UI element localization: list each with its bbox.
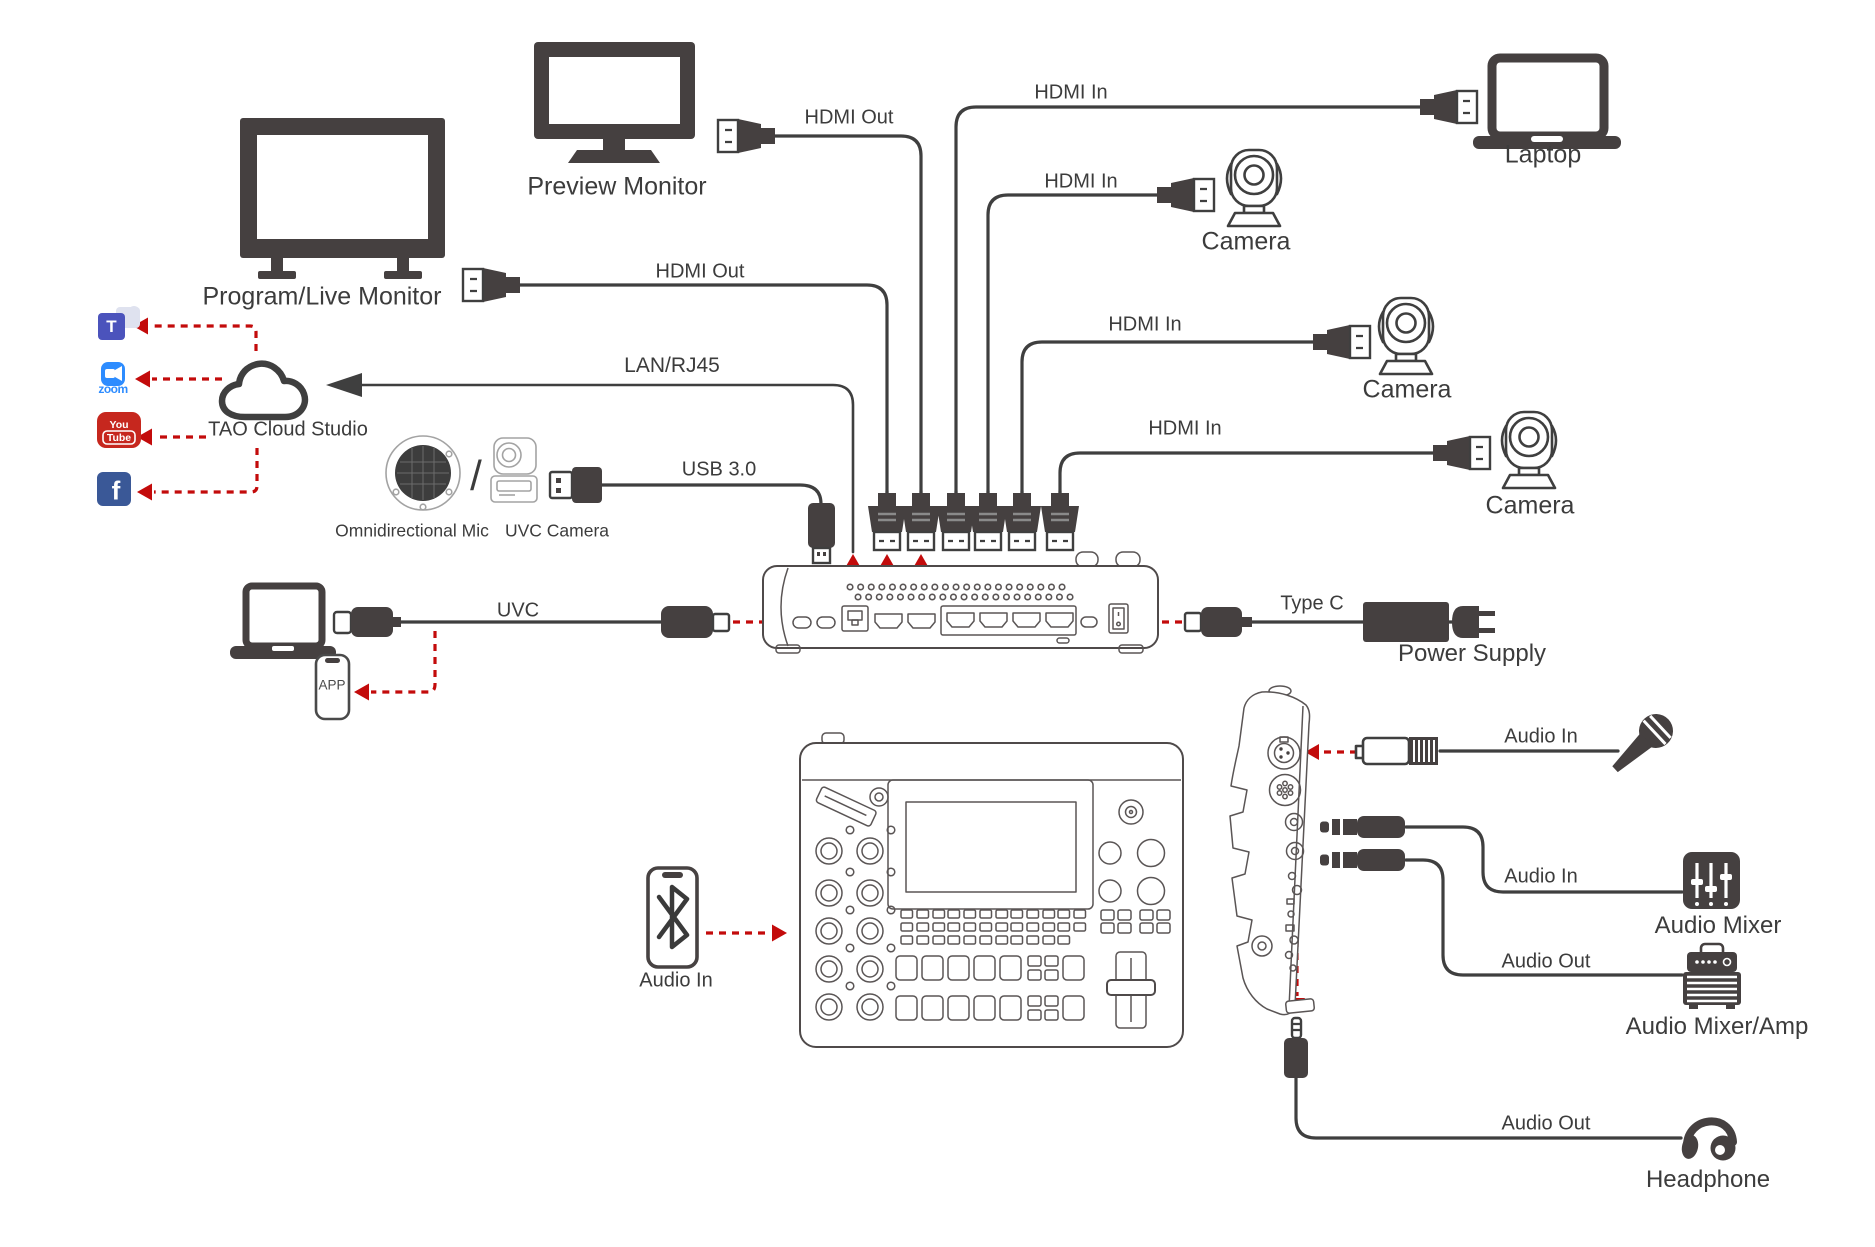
jack-plug-icon [1320,816,1405,838]
hdmi-plug-icon [902,491,940,550]
switcher-rear-panel [763,552,1158,653]
camera2-icon [1379,298,1433,374]
facebook-glyph: f [112,476,121,507]
audio-mixer-icon [1683,852,1740,909]
hdmi-plug-icon [463,268,520,302]
zoom-wordmark: zoom [98,382,127,396]
program-monitor-label: Program/Live Monitor [203,283,442,312]
bt-audio-in-label: Audio In [639,970,712,993]
xlr-connector-icon [1356,737,1438,765]
amp-audio-out-label: Audio Out [1502,951,1591,974]
usb3-label: USB 3.0 [682,459,756,482]
lan-label: LAN/RJ45 [624,354,720,378]
slash-separator: / [470,452,482,500]
youtube-glyph-tube: Tube [107,432,131,444]
headphone-label: Headphone [1646,1166,1770,1194]
cloud-icon [222,364,305,417]
omni-mic-label: Omnidirectional Mic [335,521,489,542]
bluetooth-phone-icon [648,868,697,967]
diagram-svg [0,0,1875,1247]
hdmi-plug-icon [1420,90,1477,124]
amp-icon [1683,944,1741,1009]
jack-plug-icon [1320,849,1405,871]
hdmi-in-camera3-label: HDMI In [1148,418,1221,441]
hdmi-in-camera2-label: HDMI In [1108,314,1181,337]
arrow-bluetooth-in [706,925,787,942]
hdmi-out-program-label: HDMI Out [656,261,745,284]
camera2-label: Camera [1363,376,1452,405]
headphone-icon [1680,1121,1736,1160]
mixer-audio-in-label: Audio In [1504,866,1577,889]
laptop-label: Laptop [1505,141,1581,170]
hdmi-plug-icon [969,491,1007,550]
youtube-glyph-you: You [109,419,128,431]
switcher-side-panel [1230,686,1315,1015]
uvc-camera-icon [491,438,537,502]
usb3-cable [602,485,821,504]
audio-cables [1296,751,1682,1138]
typec-connector-icon [1185,607,1252,637]
camera1-icon [1227,150,1281,226]
uvc-label: UVC [497,600,539,623]
program-monitor-icon [240,118,445,279]
hdmi-plug-icon [1157,178,1214,212]
hdmi-plug-icon [937,491,975,550]
headphone-audio-out-label: Audio Out [1502,1113,1591,1136]
hdmi-cables [520,107,1434,493]
camera3-label: Camera [1486,492,1575,521]
camera3-icon [1502,412,1556,488]
laptop-uvc-icon [230,586,336,659]
mic-audio-in-label: Audio In [1504,726,1577,749]
hdmi-plug-icon [718,119,775,153]
app-label: APP [318,678,345,693]
audio-mixer-label: Audio Mixer [1655,912,1782,940]
cloud-label: TAO Cloud Studio [208,419,368,442]
diagram-canvas: Preview Monitor Program/Live Monitor Lap… [0,0,1875,1247]
hdmi-in-laptop-label: HDMI In [1034,82,1107,105]
teams-icon [98,306,140,340]
hdmi-plug-icon [868,491,906,550]
usb-connector-icon [808,503,835,563]
hdmi-plug-icon [1313,325,1370,359]
power-brick-icon [1363,602,1449,642]
power-plug-icon [1452,606,1495,638]
switcher-front-panel [800,733,1183,1047]
usbc-connector-icon [661,606,729,638]
audio-mixer-amp-label: Audio Mixer/Amp [1626,1013,1809,1041]
typec-label: Type C [1280,593,1343,616]
uvc-camera-label: UVC Camera [505,521,609,542]
usbc-connector-icon [334,607,401,637]
hdmi-out-preview-label: HDMI Out [805,107,894,130]
headphone-jack-icon [1284,1018,1308,1078]
laptop-icon [1473,58,1621,149]
omnidirectional-mic-icon [386,436,460,510]
camera1-label: Camera [1202,228,1291,257]
microphone-icon [1603,707,1680,782]
hdmi-in-camera1-label: HDMI In [1044,171,1117,194]
usb-a-plug-icon [550,467,602,503]
arrow-xlr-in [1305,744,1357,760]
preview-monitor-label: Preview Monitor [527,173,706,202]
preview-monitor-icon [534,42,695,163]
hdmi-plug-icon [1433,436,1490,470]
hdmi-plug-icon [1003,491,1041,550]
teams-glyph: T [106,317,116,337]
power-supply-label: Power Supply [1398,640,1546,668]
hdmi-plug-icon [1041,491,1079,550]
arrow-app [354,631,435,701]
